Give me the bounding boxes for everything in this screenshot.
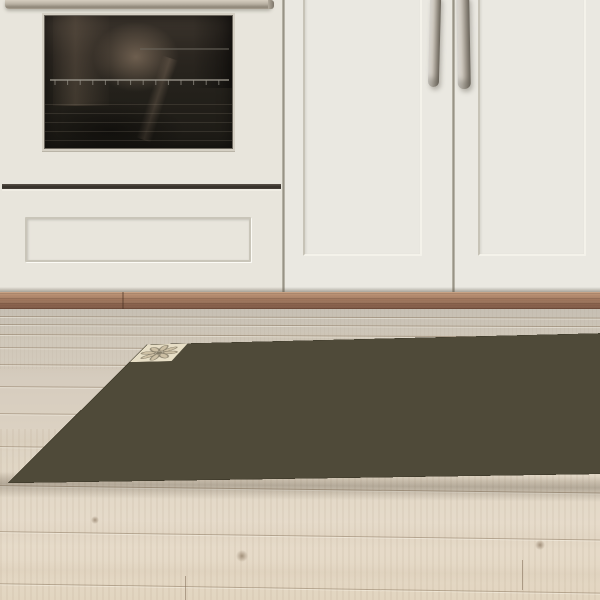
- door-panel: [303, 0, 422, 256]
- oven-glass-streak: [45, 104, 232, 105]
- floor-plank-joint: [185, 576, 186, 600]
- floor-knot: [91, 516, 99, 524]
- kitchen-photo: [0, 0, 600, 600]
- oven-handle-cap: [268, 0, 274, 9]
- oven-glass-streak: [45, 131, 232, 132]
- kickboard-seam: [122, 292, 124, 309]
- door-gap-seam: [452, 0, 455, 292]
- floor-plank-joint: [470, 350, 471, 362]
- oven: [0, 0, 283, 292]
- door-panel: [478, 0, 586, 256]
- wood-floor: [0, 309, 600, 600]
- cabinet-handle-right: [456, 0, 471, 89]
- oven-glass-streak: [45, 113, 232, 114]
- kickboard: [0, 292, 600, 309]
- cabinet-door-left: [285, 0, 452, 292]
- oven-window: [44, 15, 233, 149]
- oven-drawer-panel: [25, 217, 251, 262]
- cabinet-run: [0, 0, 600, 292]
- floor-grain-streak: [0, 360, 600, 378]
- floor-plank-joint: [522, 560, 523, 590]
- kickboard-grain: [0, 292, 600, 309]
- oven-glass-streak: [45, 140, 232, 141]
- floor-knot: [236, 550, 248, 562]
- floor-knot: [535, 540, 545, 550]
- oven-handle: [5, 0, 272, 9]
- oven-glass-streak: [45, 122, 232, 123]
- floor-plank-joint: [95, 418, 96, 432]
- rug-shadow: [0, 472, 600, 502]
- oven-rack-reflection: [45, 16, 233, 149]
- cabinet-door-right: [455, 0, 600, 292]
- oven-vent: [2, 184, 281, 191]
